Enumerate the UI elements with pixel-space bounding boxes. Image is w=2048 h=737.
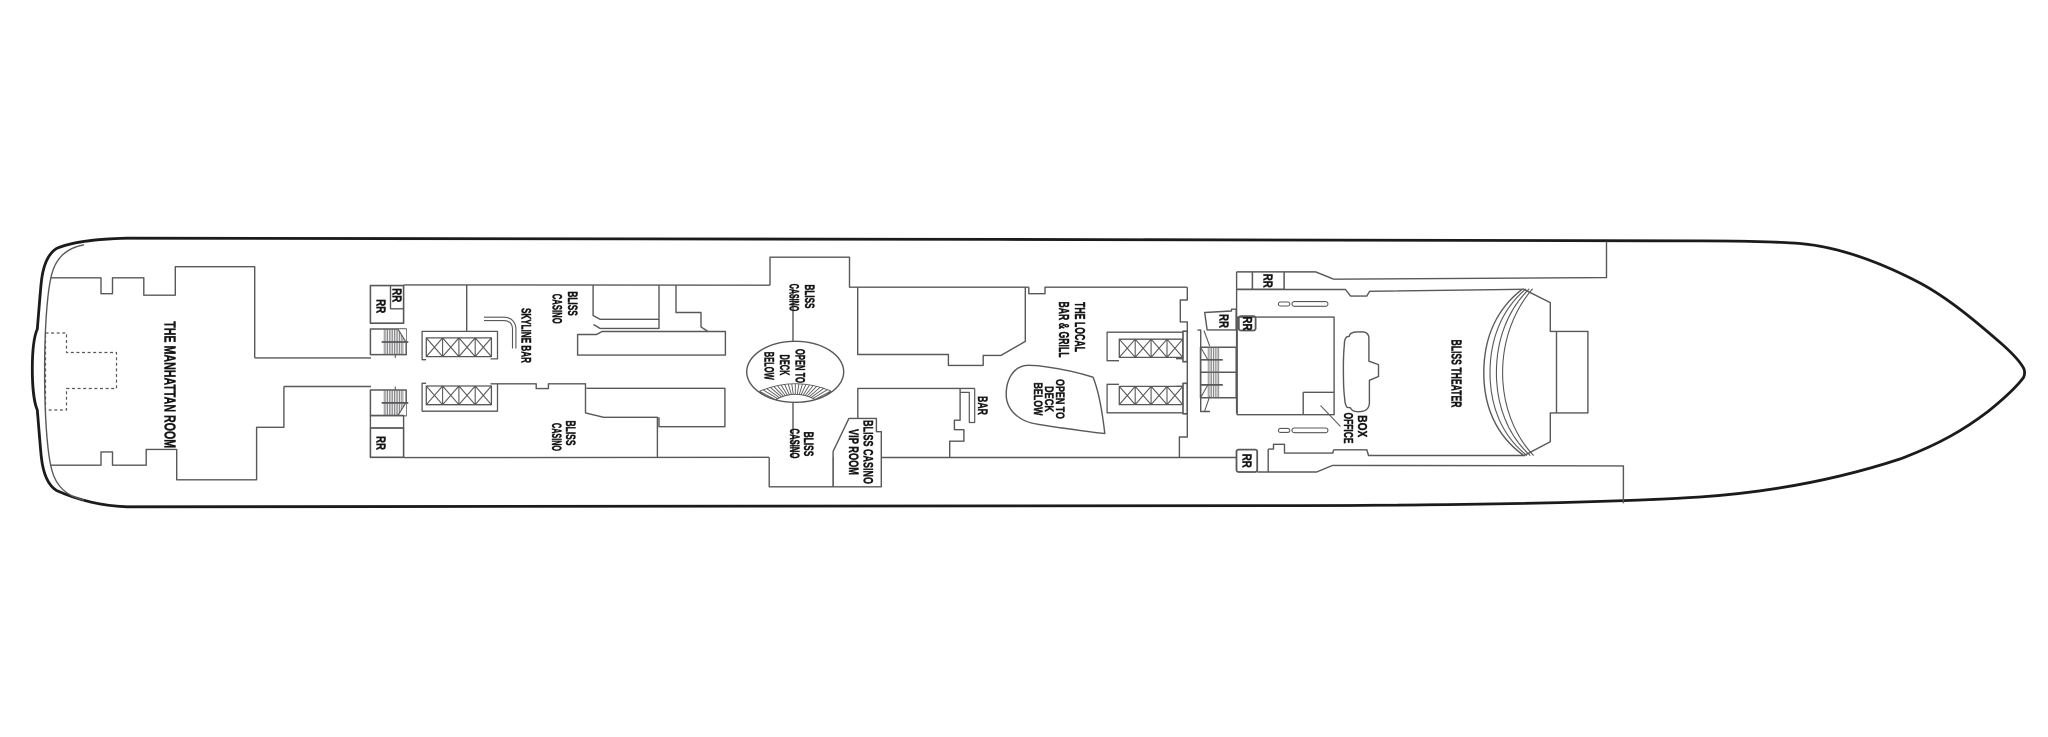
svg-text:RR: RR [1217, 314, 1232, 328]
svg-text:DECK: DECK [777, 355, 792, 376]
svg-text:CASINO: CASINO [787, 284, 802, 312]
svg-text:BLISS: BLISS [565, 291, 580, 316]
svg-text:OPEN TO: OPEN TO [793, 349, 808, 383]
svg-text:SKYLINE BAR: SKYLINE BAR [519, 308, 534, 363]
svg-text:CASINO: CASINO [549, 294, 564, 324]
svg-text:VIP ROOM: VIP ROOM [846, 429, 861, 475]
svg-text:RR: RR [1240, 317, 1255, 331]
svg-text:CASINO: CASINO [549, 423, 564, 451]
svg-text:THE LOCAL: THE LOCAL [1071, 302, 1087, 352]
svg-text:BLISS: BLISS [801, 432, 816, 457]
svg-text:BAR & GRILL: BAR & GRILL [1055, 302, 1071, 358]
svg-text:BAR: BAR [975, 396, 990, 415]
svg-text:OFFICE: OFFICE [1341, 413, 1356, 444]
svg-text:BOX: BOX [1355, 415, 1370, 437]
svg-text:BLISS THEATER: BLISS THEATER [1448, 340, 1465, 408]
svg-text:BLISS CASINO: BLISS CASINO [861, 420, 876, 484]
svg-text:RR: RR [373, 436, 388, 450]
svg-text:RR: RR [1261, 274, 1276, 288]
svg-text:BLISS: BLISS [563, 421, 578, 446]
svg-text:BLISS: BLISS [802, 285, 817, 309]
svg-text:BELOW: BELOW [762, 352, 777, 380]
svg-text:RR: RR [390, 288, 405, 302]
svg-text:RR: RR [373, 299, 388, 313]
svg-text:BELOW: BELOW [1031, 383, 1045, 416]
svg-text:THE MANHATTAN ROOM: THE MANHATTAN ROOM [160, 321, 177, 448]
svg-text:CASINO: CASINO [787, 429, 802, 459]
svg-text:RR: RR [1240, 454, 1255, 468]
